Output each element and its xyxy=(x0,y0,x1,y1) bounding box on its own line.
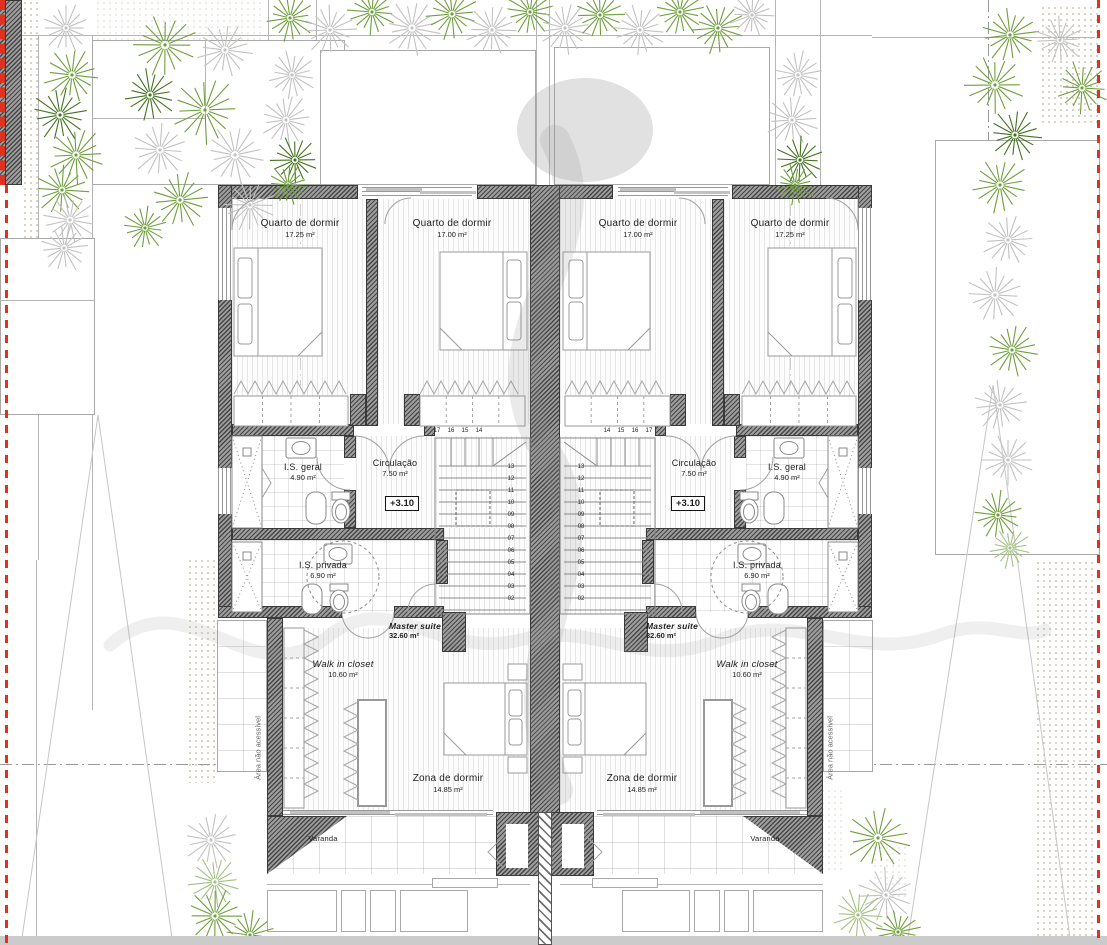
boundary-red-line xyxy=(1097,0,1100,945)
stair-step-number: 06 xyxy=(508,548,515,554)
stair-step-number: 14 xyxy=(476,428,483,434)
plot-line xyxy=(872,37,1095,38)
room-label-varanda-right: Varanda xyxy=(750,834,779,843)
plant-icon xyxy=(191,890,242,942)
wall-segment xyxy=(232,528,444,540)
corridor-floor xyxy=(444,528,530,614)
patio xyxy=(320,50,536,185)
plant-icon xyxy=(124,206,166,247)
wall-segment xyxy=(218,185,358,199)
plant-icon xyxy=(964,57,1023,113)
plant-icon xyxy=(188,859,238,907)
plant-icon xyxy=(467,7,517,54)
door-panel xyxy=(700,811,800,814)
shower-floor xyxy=(232,542,262,612)
suite-floor xyxy=(283,628,530,812)
paving xyxy=(694,890,720,932)
wall-segment xyxy=(807,618,823,816)
plant-icon xyxy=(508,0,553,33)
wall-segment xyxy=(732,185,872,199)
stair-step-number: 07 xyxy=(508,536,515,542)
patio xyxy=(554,47,770,185)
door-panel xyxy=(290,811,390,814)
plant-icon xyxy=(44,5,86,52)
neighbor-plot xyxy=(0,238,95,415)
boundary-red-line xyxy=(5,185,8,943)
stair-step-number: 09 xyxy=(508,512,515,518)
room-label-walk-in-closet-right: Walk in closet10.60 m² xyxy=(716,659,777,679)
room-label-varanda-left: Varanda xyxy=(308,834,337,843)
window xyxy=(218,208,232,300)
paving xyxy=(753,890,823,932)
step xyxy=(592,878,658,888)
wall-segment xyxy=(267,618,283,816)
room-label-zona-dormir-left: Zona de dormir14.85 m² xyxy=(413,773,484,794)
wall-segment xyxy=(218,606,342,618)
wall-segment xyxy=(748,606,872,618)
neighbor-plot xyxy=(935,140,1100,555)
planter-edge xyxy=(775,0,776,190)
stair-step-number: 02 xyxy=(578,596,585,602)
stair-step-number: 10 xyxy=(508,500,515,506)
paving xyxy=(267,890,337,932)
gravel-strip xyxy=(1035,560,1097,940)
plant-icon xyxy=(35,88,87,139)
plant-icon xyxy=(187,814,235,868)
stair-step-number: 16 xyxy=(448,428,455,434)
wall-segment xyxy=(670,394,686,426)
stair-step-number: 12 xyxy=(508,476,515,482)
door-recess xyxy=(562,824,584,868)
stair-step-number: 17 xyxy=(434,428,441,434)
stair-step-number: 03 xyxy=(508,584,515,590)
plot-line xyxy=(205,40,206,119)
wall-segment xyxy=(712,199,724,426)
party-wall xyxy=(530,185,560,817)
party-wall-extension xyxy=(536,0,537,186)
patio xyxy=(92,40,345,185)
wall-segment xyxy=(442,612,466,652)
plant-icon xyxy=(730,0,774,35)
stair-step-number: 16 xyxy=(632,428,639,434)
axis-line xyxy=(988,0,989,140)
corridor-floor xyxy=(560,528,646,614)
window xyxy=(858,208,872,300)
shower-floor xyxy=(828,542,858,612)
annotation-area-nao-acessivel-left: Área não acessível xyxy=(254,716,263,780)
plant-icon xyxy=(44,51,98,101)
gravel-strip xyxy=(1040,5,1098,123)
stair-step-number: 05 xyxy=(578,560,585,566)
door-panel xyxy=(366,188,422,191)
plant-icon xyxy=(38,165,89,212)
stair-step-number: 06 xyxy=(578,548,585,554)
plant-icon xyxy=(657,0,704,33)
stair-step-number: 04 xyxy=(578,572,585,578)
room-label-is-geral-right: I.S. geral4.90 m² xyxy=(768,462,806,482)
shower-floor xyxy=(828,436,858,528)
wall-segment xyxy=(344,436,356,458)
plot-line xyxy=(22,35,872,36)
party-wall-extension xyxy=(549,0,550,186)
room-label-quarto-2: Quarto de dormir17.00 m² xyxy=(413,218,492,239)
plant-icon xyxy=(983,8,1039,60)
division-fence xyxy=(538,812,552,945)
room-label-master-suite-right: Master suite32.60 m² xyxy=(646,621,698,640)
stair-step-number: 15 xyxy=(462,428,469,434)
door-panel xyxy=(620,188,676,191)
level-marker-left: +3.10 xyxy=(385,492,419,511)
room-label-is-geral-left: I.S. geral4.90 m² xyxy=(284,462,322,482)
room-label-walk-in-closet-left: Walk in closet10.60 m² xyxy=(312,659,373,679)
wall-segment xyxy=(366,199,378,426)
stair-step-number: 05 xyxy=(508,560,515,566)
paving xyxy=(370,890,396,932)
gravel-strip xyxy=(22,0,38,240)
paving xyxy=(724,890,749,932)
wall-segment xyxy=(736,424,858,436)
plant-icon xyxy=(347,0,394,35)
stair-step-number: 02 xyxy=(508,596,515,602)
wall-segment xyxy=(394,606,444,618)
door-panel xyxy=(674,191,730,194)
suite-floor xyxy=(560,628,807,812)
wall-segment xyxy=(344,490,356,528)
wall-segment xyxy=(646,528,858,540)
room-label-quarto-4: Quarto de dormir17.25 m² xyxy=(751,218,830,239)
wall-segment xyxy=(734,436,746,458)
level-marker-right: +3.10 xyxy=(671,492,705,511)
door-recess xyxy=(506,824,528,868)
plot-line xyxy=(0,300,95,301)
stair-step-number: 08 xyxy=(578,524,585,530)
wall-segment xyxy=(724,394,740,426)
wall-segment xyxy=(646,606,696,618)
stair-step-number: 15 xyxy=(618,428,625,434)
paving xyxy=(341,890,366,932)
stair-step-number: 14 xyxy=(604,428,611,434)
wall-segment xyxy=(642,540,654,584)
stair-step-number: 12 xyxy=(578,476,585,482)
floor-plan: Quarto de dormir17.25 m² Quarto de dormi… xyxy=(0,0,1107,945)
plant-icon xyxy=(389,3,440,55)
door-panel xyxy=(395,813,487,816)
floor-plan-page: { "plan": { "rooms": { "quarto_outer": {… xyxy=(0,0,1107,945)
room-label-is-privada-left: I.S. privada6.90 m² xyxy=(299,560,347,580)
wall-segment xyxy=(655,424,666,436)
plant-icon xyxy=(777,136,822,182)
wall-segment xyxy=(734,490,746,528)
boundary-wall xyxy=(0,0,22,185)
plot-line xyxy=(36,560,37,940)
plant-icon xyxy=(426,0,476,40)
stair-step-number: 08 xyxy=(508,524,515,530)
stair-step-number: 13 xyxy=(578,464,585,470)
wall-segment xyxy=(350,394,366,426)
plot-line xyxy=(92,118,206,119)
paving xyxy=(400,890,468,932)
step xyxy=(432,878,498,888)
gravel-strip xyxy=(187,558,217,783)
paving xyxy=(622,890,690,932)
room-label-circulacao-left: Circulação7.50 m² xyxy=(373,458,418,478)
wall-segment xyxy=(404,394,420,426)
window xyxy=(858,468,872,514)
room-label-circulacao-right: Circulação7.50 m² xyxy=(672,458,717,478)
door-panel xyxy=(603,813,695,816)
stair-step-number: 10 xyxy=(578,500,585,506)
room-label-quarto-3: Quarto de dormir17.00 m² xyxy=(599,218,678,239)
wall-segment xyxy=(232,424,354,436)
shower-floor xyxy=(232,436,262,528)
annotation-area-nao-acessivel-right: Área não acessível xyxy=(826,716,835,780)
planter-edge xyxy=(820,0,821,190)
room-label-is-privada-right: I.S. privada6.90 m² xyxy=(733,560,781,580)
stair-step-number: 07 xyxy=(578,536,585,542)
stair-step-number: 17 xyxy=(646,428,653,434)
window xyxy=(218,468,232,514)
plant-icon xyxy=(577,0,625,36)
room-label-master-suite-left: Master suite32.60 m² xyxy=(389,621,441,640)
stair-step-number: 03 xyxy=(578,584,585,590)
wall-segment xyxy=(436,540,448,584)
stair-step-number: 04 xyxy=(508,572,515,578)
room-label-zona-dormir-right: Zona de dormir14.85 m² xyxy=(607,773,678,794)
bottom-bar xyxy=(0,936,1107,945)
stair-step-number: 09 xyxy=(578,512,585,518)
door-panel xyxy=(420,191,476,194)
room-label-quarto-1: Quarto de dormir17.25 m² xyxy=(261,218,340,239)
stair-step-number: 11 xyxy=(578,488,584,494)
stair-step-number: 13 xyxy=(508,464,515,470)
gravel-strip xyxy=(872,845,908,900)
plant-icon xyxy=(775,50,822,96)
stair-step-number: 11 xyxy=(508,488,514,494)
wall-segment xyxy=(624,612,648,652)
